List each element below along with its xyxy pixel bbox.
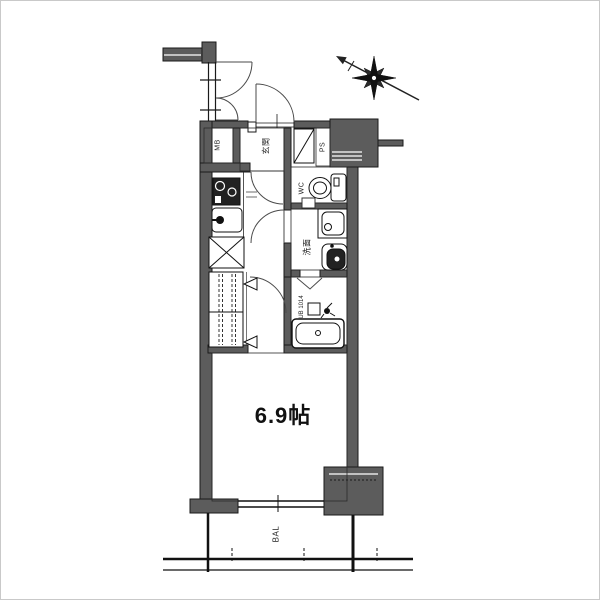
wall-hall-bath (284, 277, 291, 345)
pipe-space-label: PS (320, 142, 327, 152)
washroom-door (251, 210, 284, 243)
wc-label: WC (299, 182, 306, 195)
shower-fixture (321, 303, 335, 318)
entrance-threshold (256, 114, 294, 128)
entrance-fixtures (294, 129, 314, 163)
wall-stub-right (378, 140, 403, 146)
closet-opening-arrow (244, 278, 257, 290)
wall-hall-washroom-lower (284, 243, 291, 277)
wall-upper-left-double (200, 62, 221, 121)
wall-washroom-bath-left (291, 270, 300, 277)
meter-box-label: MB (215, 139, 222, 151)
washroom-label: 洗面 (302, 239, 313, 256)
room-size-label: 6.9帖 (255, 398, 312, 430)
wc-door (302, 198, 315, 208)
compass-center (372, 76, 377, 81)
wall-hall-washroom-upper (284, 128, 291, 210)
wall-top-row-left (212, 121, 248, 128)
wall-top-row-right (294, 121, 334, 128)
bath-symbol-square (308, 303, 320, 315)
porch-door-large (216, 62, 252, 98)
walls (163, 42, 403, 515)
wall-washroom-bath-right (320, 270, 347, 277)
floor-plan: MB 玄関 PS WC 洗面 UB 1014 BAL 6.9帖 (0, 0, 600, 600)
wall-right-outer (347, 167, 358, 467)
bathtub (292, 319, 344, 348)
balcony-label: BAL (272, 526, 281, 543)
genkan-label: 玄関 (261, 138, 272, 155)
closet-box (209, 272, 243, 347)
genkan-hall-door (246, 172, 283, 204)
stove-detail (215, 196, 221, 203)
kitchen (209, 178, 244, 268)
compass-icon (336, 56, 419, 100)
toilet (309, 174, 346, 201)
compass-arrowhead (336, 56, 347, 64)
wash-basin (322, 244, 347, 270)
sanitary (292, 174, 347, 348)
closet (209, 272, 257, 348)
bath-folding-door (297, 278, 322, 289)
bath-label: UB 1014 (299, 295, 305, 318)
wall-wc-washroom (291, 203, 347, 209)
wall-top-column (202, 42, 216, 63)
refrigerator-space (209, 237, 244, 268)
vanity-counter (318, 209, 347, 238)
entrance-door (256, 84, 294, 122)
door-frame-notch (248, 122, 256, 132)
main-window (238, 495, 324, 512)
porch-door-small (216, 98, 238, 120)
